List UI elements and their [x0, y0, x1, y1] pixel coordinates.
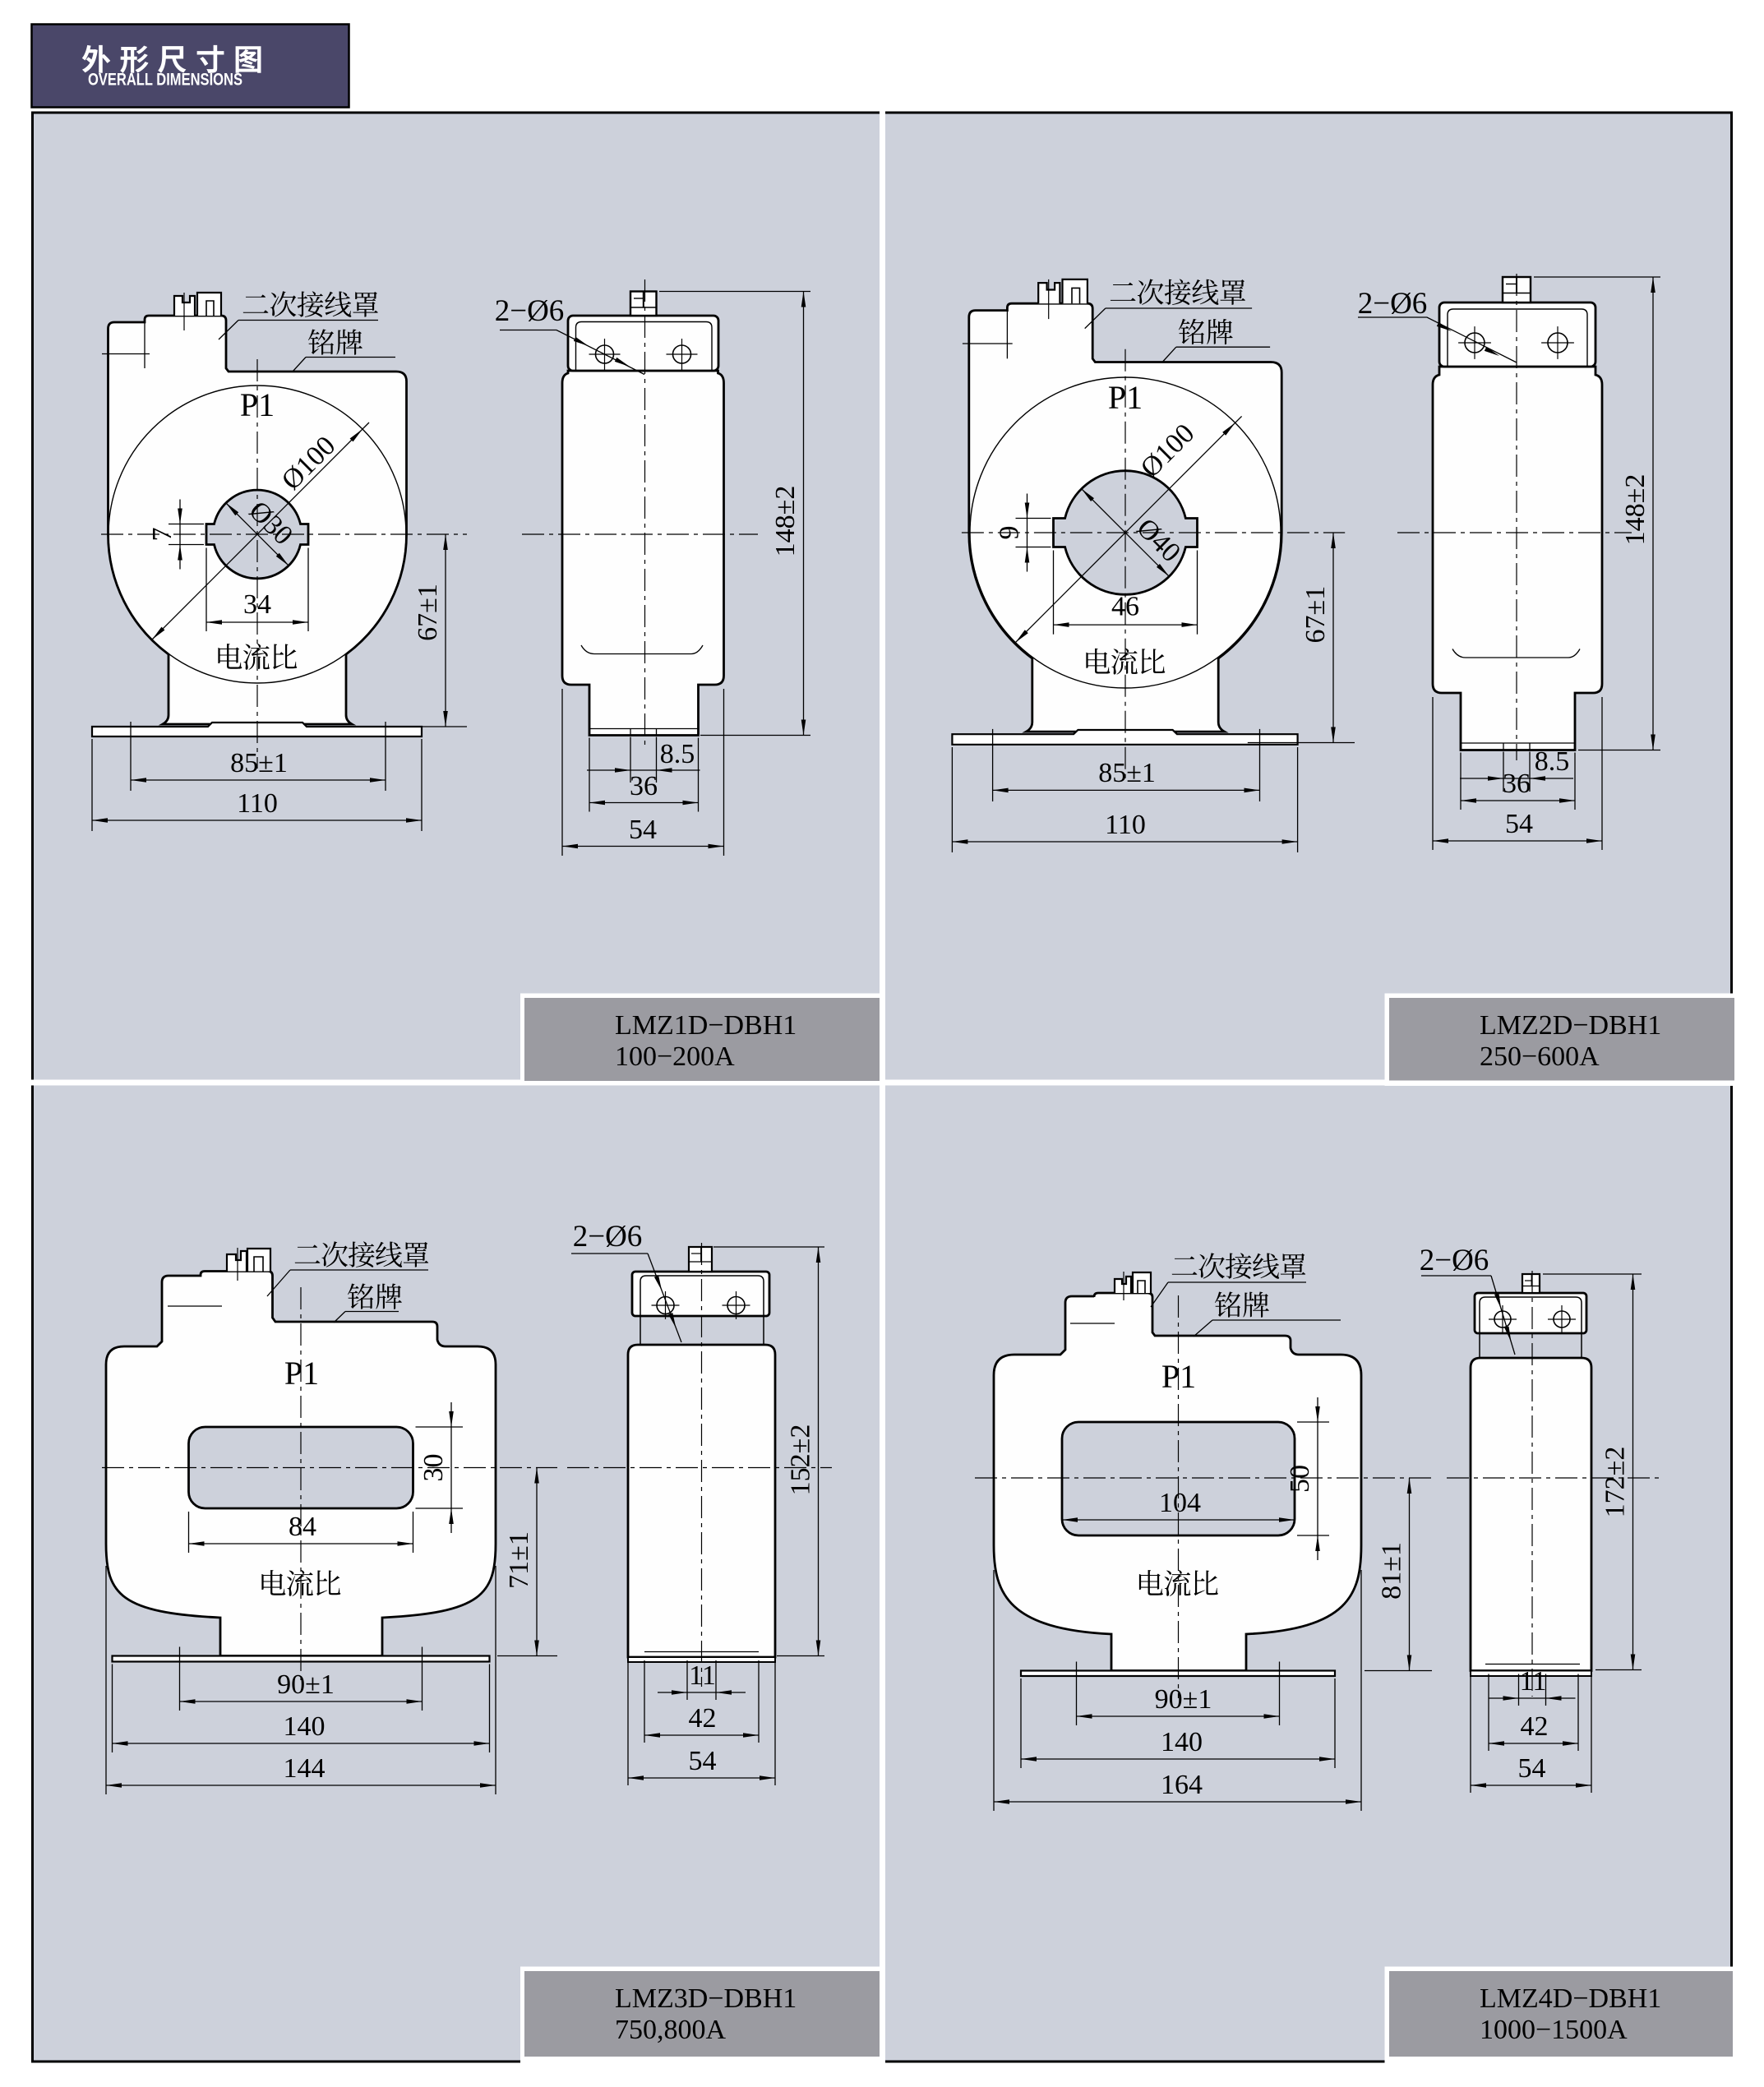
- svg-text:100−200A: 100−200A: [615, 1041, 735, 1072]
- svg-text:148±2: 148±2: [1620, 474, 1651, 546]
- svg-text:152±2: 152±2: [786, 1424, 816, 1496]
- svg-text:11: 11: [689, 1660, 716, 1691]
- svg-text:90±1: 90±1: [1155, 1684, 1212, 1715]
- svg-text:P1: P1: [1108, 379, 1143, 416]
- svg-text:81±1: 81±1: [1377, 1542, 1407, 1600]
- svg-text:P1: P1: [240, 386, 275, 423]
- svg-text:P1: P1: [284, 1355, 319, 1392]
- svg-text:90±1: 90±1: [277, 1669, 335, 1700]
- svg-text:2−Ø6: 2−Ø6: [1420, 1244, 1489, 1277]
- svg-text:42: 42: [689, 1703, 717, 1734]
- svg-text:LMZ3D−DBH1: LMZ3D−DBH1: [615, 1983, 797, 2014]
- svg-text:148±2: 148±2: [770, 486, 801, 557]
- svg-text:54: 54: [629, 815, 657, 845]
- svg-text:46: 46: [1111, 592, 1139, 622]
- svg-text:85±1: 85±1: [1098, 758, 1156, 788]
- svg-text:750,800A: 750,800A: [615, 2015, 727, 2045]
- svg-text:30: 30: [418, 1454, 449, 1482]
- svg-text:2−Ø6: 2−Ø6: [573, 1220, 643, 1254]
- svg-text:84: 84: [289, 1512, 316, 1542]
- svg-text:2−Ø6: 2−Ø6: [495, 294, 565, 328]
- svg-text:110: 110: [237, 788, 278, 819]
- svg-text:11: 11: [1520, 1666, 1547, 1697]
- svg-text:144: 144: [284, 1753, 326, 1784]
- svg-text:140: 140: [1161, 1727, 1203, 1757]
- svg-text:OVERALL DIMENSIONS: OVERALL DIMENSIONS: [88, 71, 242, 90]
- svg-text:71±1: 71±1: [504, 1531, 534, 1589]
- svg-text:2−Ø6: 2−Ø6: [1358, 287, 1428, 321]
- svg-text:LMZ4D−DBH1: LMZ4D−DBH1: [1480, 1983, 1661, 2014]
- svg-text:8.5: 8.5: [660, 739, 695, 769]
- svg-text:110: 110: [1105, 810, 1146, 840]
- svg-text:36: 36: [1503, 769, 1531, 799]
- svg-text:250−600A: 250−600A: [1480, 1041, 1600, 1072]
- svg-text:54: 54: [1518, 1753, 1546, 1784]
- svg-text:42: 42: [1521, 1711, 1549, 1742]
- svg-text:50: 50: [1285, 1465, 1315, 1493]
- svg-text:LMZ2D−DBH1: LMZ2D−DBH1: [1480, 1010, 1661, 1041]
- svg-text:9: 9: [995, 526, 1025, 540]
- svg-text:54: 54: [1505, 809, 1533, 839]
- svg-text:8.5: 8.5: [1535, 746, 1570, 777]
- svg-text:54: 54: [689, 1746, 717, 1776]
- svg-text:1000−1500A: 1000−1500A: [1480, 2015, 1628, 2045]
- svg-text:LMZ1D−DBH1: LMZ1D−DBH1: [615, 1010, 797, 1041]
- svg-text:85±1: 85±1: [230, 748, 288, 778]
- svg-text:172±2: 172±2: [1600, 1447, 1631, 1518]
- svg-text:36: 36: [630, 771, 658, 801]
- svg-text:67±1: 67±1: [1300, 586, 1331, 644]
- svg-text:104: 104: [1159, 1488, 1201, 1518]
- svg-text:34: 34: [243, 589, 271, 620]
- svg-text:P1: P1: [1161, 1358, 1196, 1395]
- svg-text:164: 164: [1161, 1770, 1203, 1800]
- svg-text:7: 7: [147, 528, 178, 542]
- svg-text:67±1: 67±1: [413, 584, 443, 641]
- svg-text:140: 140: [284, 1711, 326, 1742]
